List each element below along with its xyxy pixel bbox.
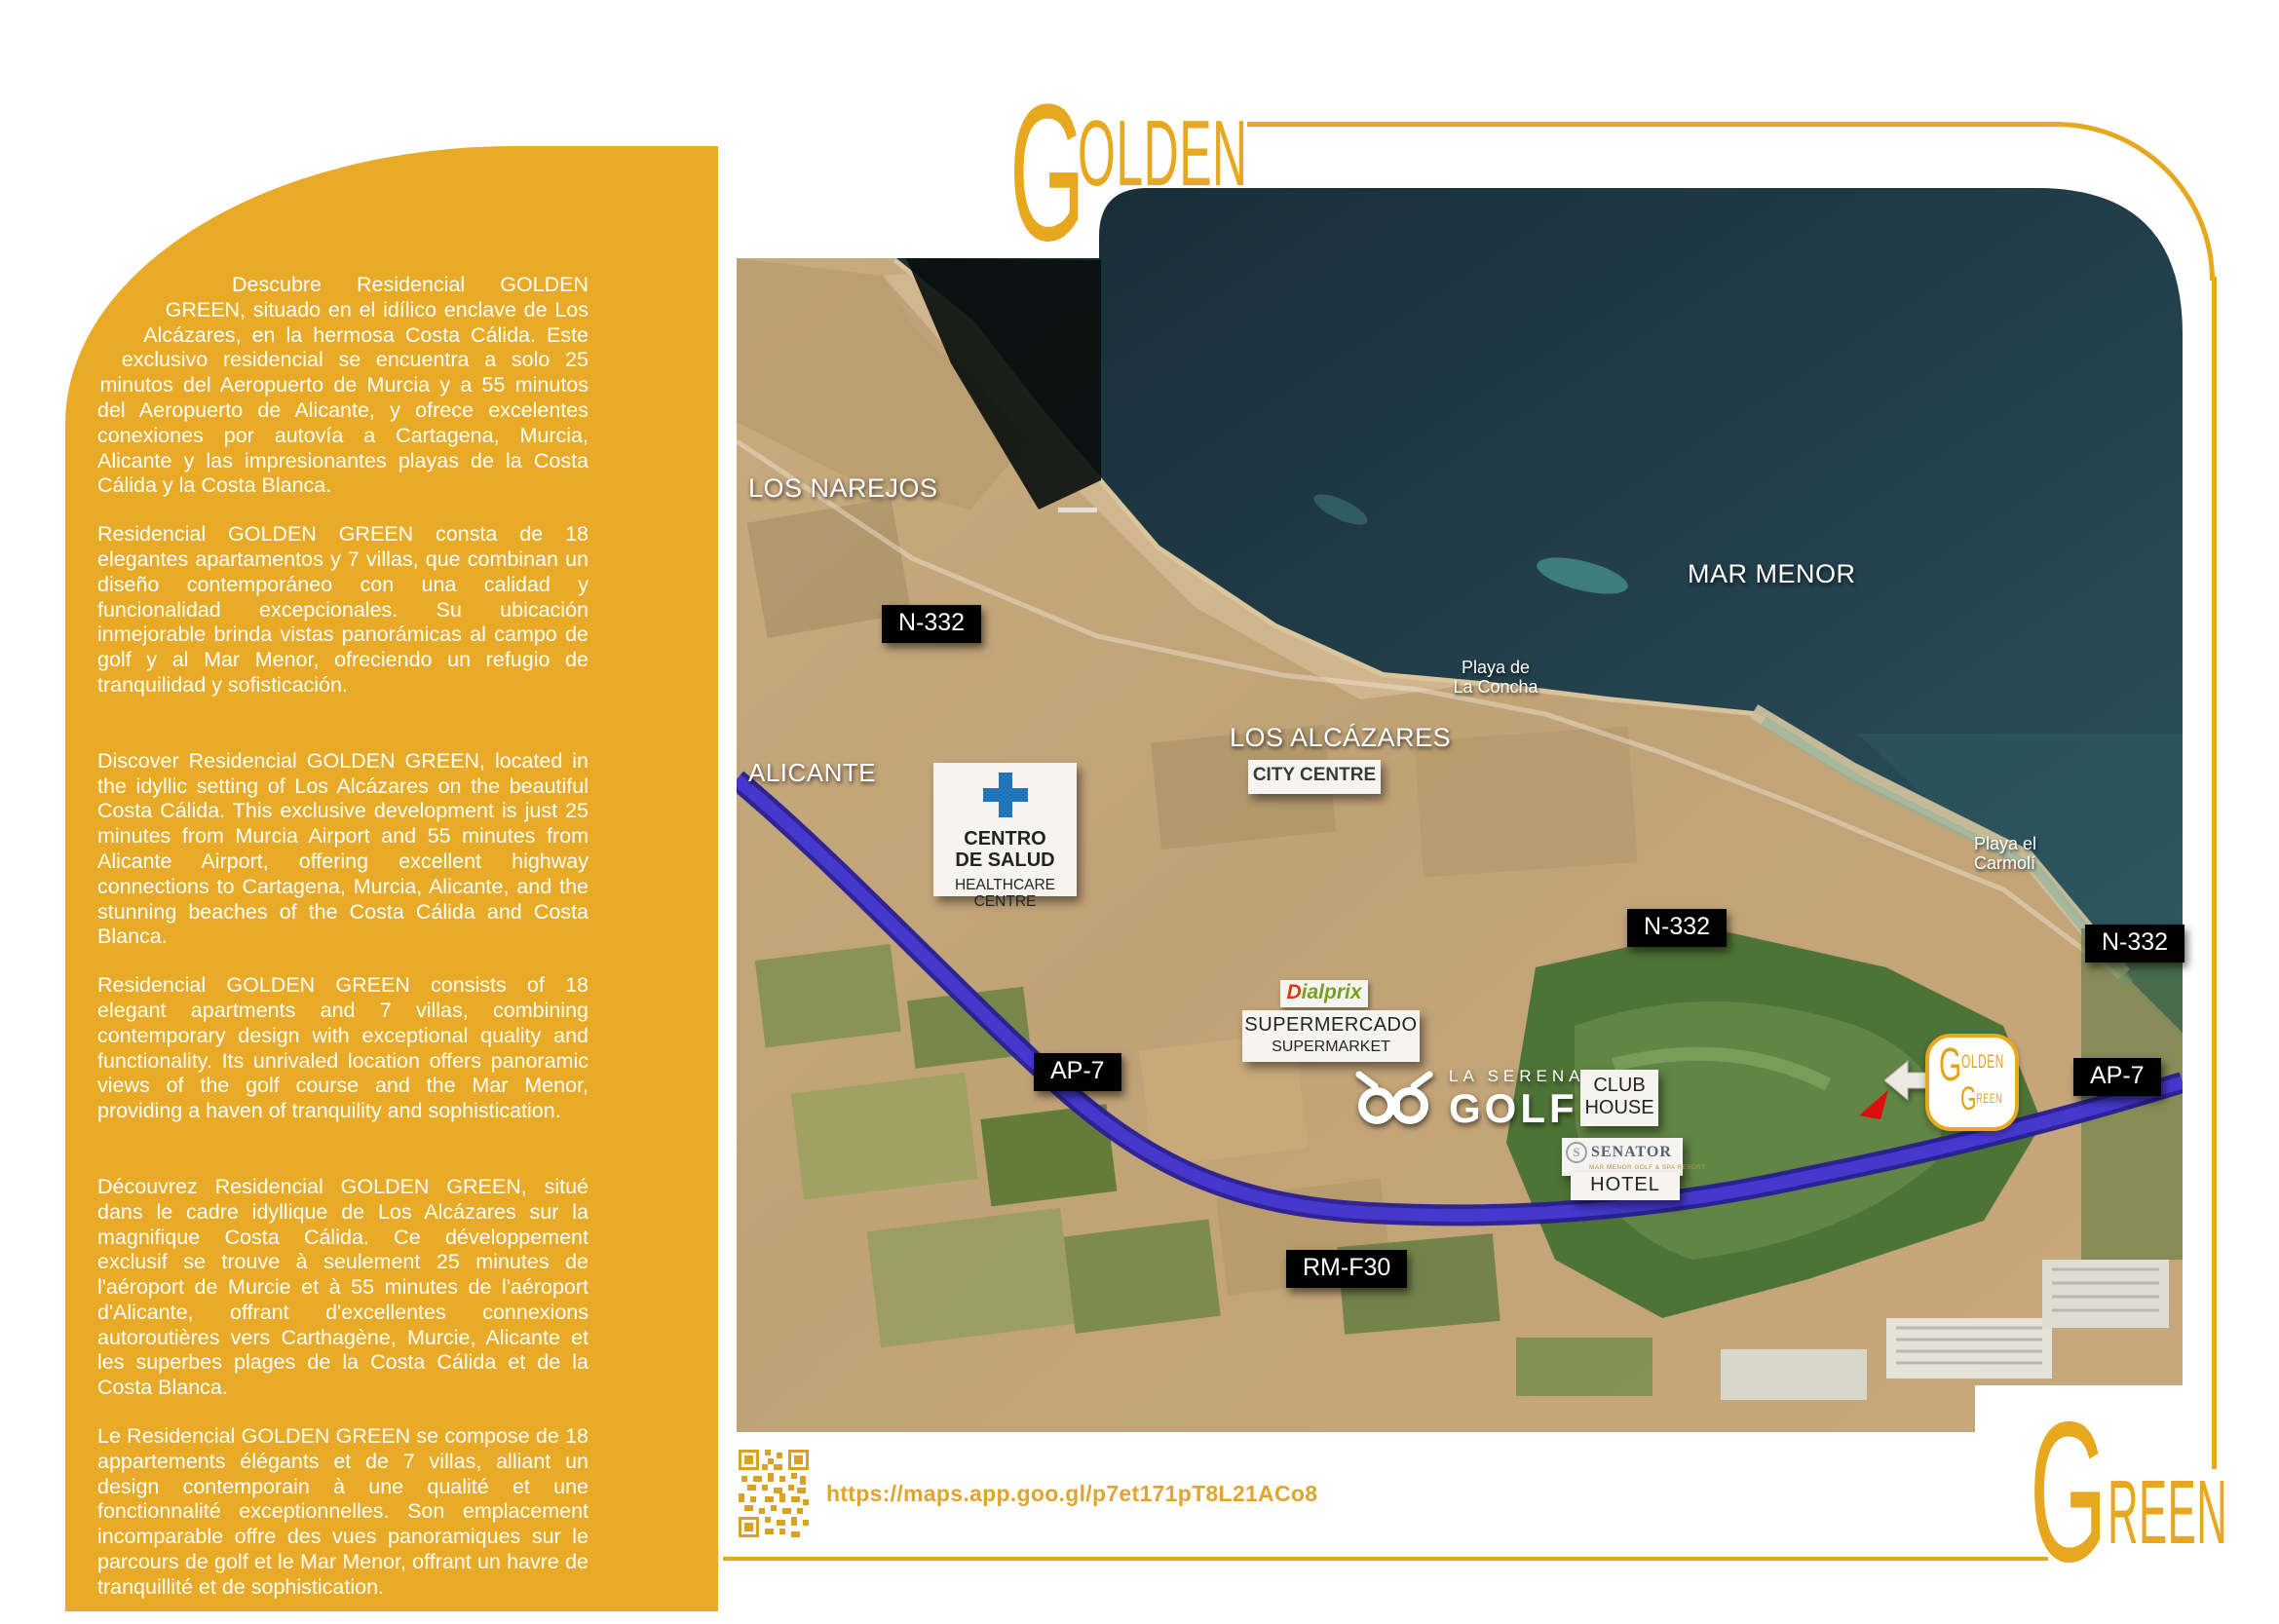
poi-healthcare-centre: CENTRO DE SALUD HEALTHCARE CENTRE — [933, 763, 1077, 896]
paragraph-es-2: Residencial GOLDEN GREEN consta de 18 el… — [97, 522, 589, 699]
road-badge-rmf30: RM-F30 — [1286, 1250, 1407, 1288]
supermarket-line2: SUPERMARKET — [1242, 1039, 1420, 1056]
paragraph-en-1: Discover Residencial GOLDEN GREEN, locat… — [97, 749, 589, 950]
la-serena-text: LA SERENA — [1449, 1067, 1585, 1086]
qr-code — [739, 1450, 809, 1537]
paragraph-fr-2: Le Residencial GOLDEN GREEN se compose d… — [97, 1424, 589, 1601]
healthcare-title-line1: CENTRO — [933, 828, 1077, 850]
healthcare-subtitle-line1: HEALTHCARE — [933, 877, 1077, 893]
la-serena-golf-text: LA SERENA GOLF — [1449, 1067, 1585, 1129]
paragraph-en-2: Residencial GOLDEN GREEN consists of 18 … — [97, 973, 589, 1124]
senator-row: S SENATOR — [1566, 1142, 1679, 1163]
map-label-playa-la-concha: Playa de La Concha — [1442, 658, 1549, 697]
road-badge-n332-west: N-332 — [882, 605, 981, 643]
golden-green-marker: G OLDEN G REEN — [1925, 1034, 2019, 1131]
road-badge-ap7-west: AP-7 — [1034, 1053, 1121, 1091]
map-url-link[interactable]: https://maps.app.goo.gl/p7et171pT8L21ACo… — [826, 1481, 1317, 1507]
marker-green-rest: REEN — [1976, 1090, 2002, 1113]
club-house-line2: HOUSE — [1580, 1097, 1658, 1119]
healthcare-title: CENTRO DE SALUD — [933, 828, 1077, 871]
marker-golden-row: G OLDEN — [1939, 1047, 2004, 1084]
marker-green-row: G REEN — [1960, 1086, 2002, 1113]
brand-green-rest: REEN — [2108, 1479, 2227, 1546]
paragraph-fr-1-text: Découvrez Residencial GOLDEN GREEN, situ… — [97, 1175, 589, 1399]
poi-city-centre: CITY CENTRE — [1248, 760, 1381, 794]
brand-green: G REEN — [2030, 1415, 2184, 1570]
map-label-mar-menor: MAR MENOR — [1688, 559, 1856, 589]
marker-golden-initial: G — [1939, 1047, 1961, 1084]
poi-senator: S SENATOR MAR MENOR GOLF & SPA RESORT — [1562, 1138, 1683, 1176]
paragraph-es-2-text: Residencial GOLDEN GREEN consta de 18 el… — [97, 522, 589, 697]
supermarket-line1: SUPERMERCADO — [1242, 1014, 1420, 1037]
map-label-los-alcazares: LOS ALCÁZARES — [1230, 723, 1451, 753]
sidebar-panel: Descubre Residencial GOLDEN GREEN, situa… — [65, 146, 718, 1611]
healthcare-title-line2: DE SALUD — [933, 850, 1077, 871]
paragraph-fr-1: Découvrez Residencial GOLDEN GREEN, situ… — [97, 1175, 589, 1401]
gold-frame-bottom-line — [723, 1557, 2048, 1561]
la-serena-golf-logo: LA SERENA GOLF — [1349, 1067, 1585, 1129]
poi-hotel: HOTEL — [1571, 1172, 1680, 1200]
paragraph-es-1: Descubre Residencial GOLDEN GREEN, situa… — [97, 273, 589, 499]
dialprix-rest: ialprix — [1302, 981, 1362, 1003]
paragraph-es-1-text: Descubre Residencial GOLDEN GREEN, situa… — [97, 273, 589, 497]
playa-la-concha-line2: La Concha — [1442, 677, 1549, 697]
dialprix-d: D — [1286, 981, 1301, 1003]
road-badge-n332-east: N-332 — [2085, 925, 2184, 963]
playa-el-carmoli-line1: Playa el — [1974, 834, 2036, 853]
senator-name: SENATOR — [1591, 1144, 1672, 1161]
paragraph-en-1-text: Discover Residencial GOLDEN GREEN, locat… — [97, 749, 589, 949]
healthcare-subtitle-line2: CENTRE — [933, 893, 1077, 910]
marker-pin-icon — [1859, 1086, 1890, 1121]
senator-swirl-icon: S — [1566, 1142, 1587, 1163]
paragraph-en-2-text: Residencial GOLDEN GREEN consists of 18 … — [97, 973, 589, 1122]
playa-la-concha-line1: Playa de — [1442, 658, 1549, 677]
map-label-alicante: ALICANTE — [748, 758, 876, 788]
playa-el-carmoli-line2: Carmolí — [1974, 853, 2036, 873]
sidebar-text-block: Descubre Residencial GOLDEN GREEN, situa… — [97, 273, 589, 1624]
senator-subtitle: MAR MENOR GOLF & SPA RESORT — [1589, 1164, 1679, 1171]
map-label-playa-el-carmoli: Playa el Carmolí — [1974, 834, 2036, 873]
gold-frame-top-line — [1247, 122, 2061, 127]
medical-cross-icon — [983, 773, 1028, 817]
poi-dialprix-logo: Dialprix — [1280, 980, 1368, 1007]
gold-frame-right-line — [2212, 277, 2217, 1469]
club-house-line1: CLUB — [1580, 1075, 1658, 1097]
golf-text: GOLF — [1449, 1088, 1585, 1129]
paragraph-fr-2-text: Le Residencial GOLDEN GREEN se compose d… — [97, 1424, 589, 1599]
marker-green-initial: G — [1960, 1086, 1976, 1113]
poi-club-house: CLUB HOUSE — [1580, 1070, 1658, 1126]
brand-green-initial: G — [2030, 1415, 2108, 1570]
brand-golden-rest: OLDEN — [1078, 119, 1248, 188]
la-serena-golf-icon — [1349, 1071, 1439, 1125]
road-badge-ap7-east: AP-7 — [2073, 1058, 2161, 1096]
healthcare-subtitle: HEALTHCARE CENTRE — [933, 877, 1077, 910]
map-label-los-narejos: LOS NAREJOS — [748, 473, 938, 504]
poi-supermarket: SUPERMERCADO SUPERMARKET — [1242, 1010, 1420, 1062]
location-map: LOS NAREJOS ALICANTE LOS ALCÁZARES MAR M… — [737, 188, 2183, 1432]
road-badge-n332-center: N-332 — [1627, 909, 1727, 947]
